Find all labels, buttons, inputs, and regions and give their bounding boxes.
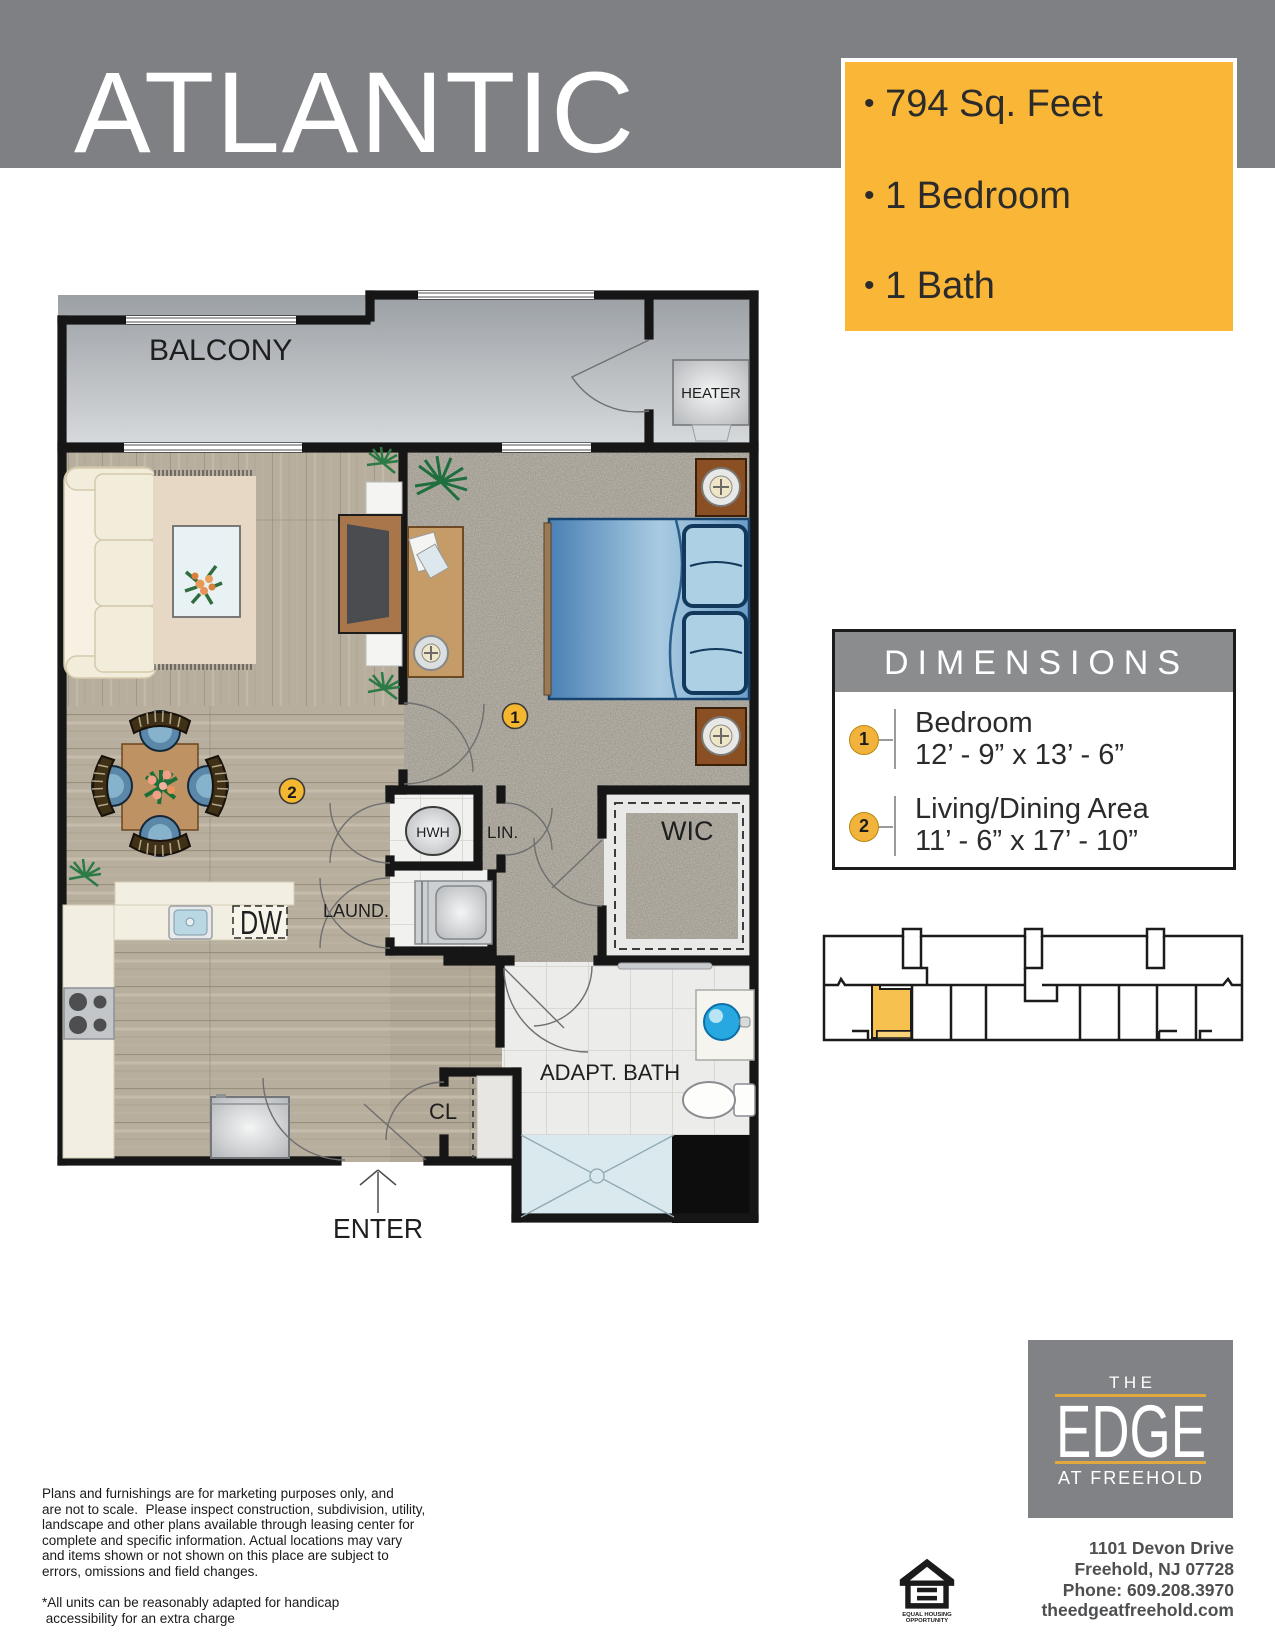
svg-text:AT FREEHOLD: AT FREEHOLD	[1058, 1468, 1202, 1488]
svg-text:ENTER: ENTER	[333, 1213, 423, 1244]
svg-text:EDGE: EDGE	[1056, 1390, 1206, 1473]
svg-text:LAUND.: LAUND.	[323, 901, 389, 921]
svg-text:HEATER: HEATER	[681, 385, 741, 402]
svg-text:HWH: HWH	[416, 824, 449, 840]
svg-text:ATLANTIC: ATLANTIC	[74, 49, 634, 168]
svg-text:ADAPT. BATH: ADAPT. BATH	[540, 1060, 680, 1085]
svg-text:WIC: WIC	[661, 816, 713, 846]
svg-text:DIMENSIONS: DIMENSIONS	[884, 644, 1180, 682]
svg-text:CL: CL	[429, 1099, 457, 1124]
svg-text:BALCONY: BALCONY	[149, 334, 292, 367]
svg-text:LIN.: LIN.	[487, 823, 518, 842]
svg-text:2: 2	[287, 783, 296, 802]
svg-text:1: 1	[510, 708, 519, 727]
svg-text:DW: DW	[240, 904, 283, 941]
